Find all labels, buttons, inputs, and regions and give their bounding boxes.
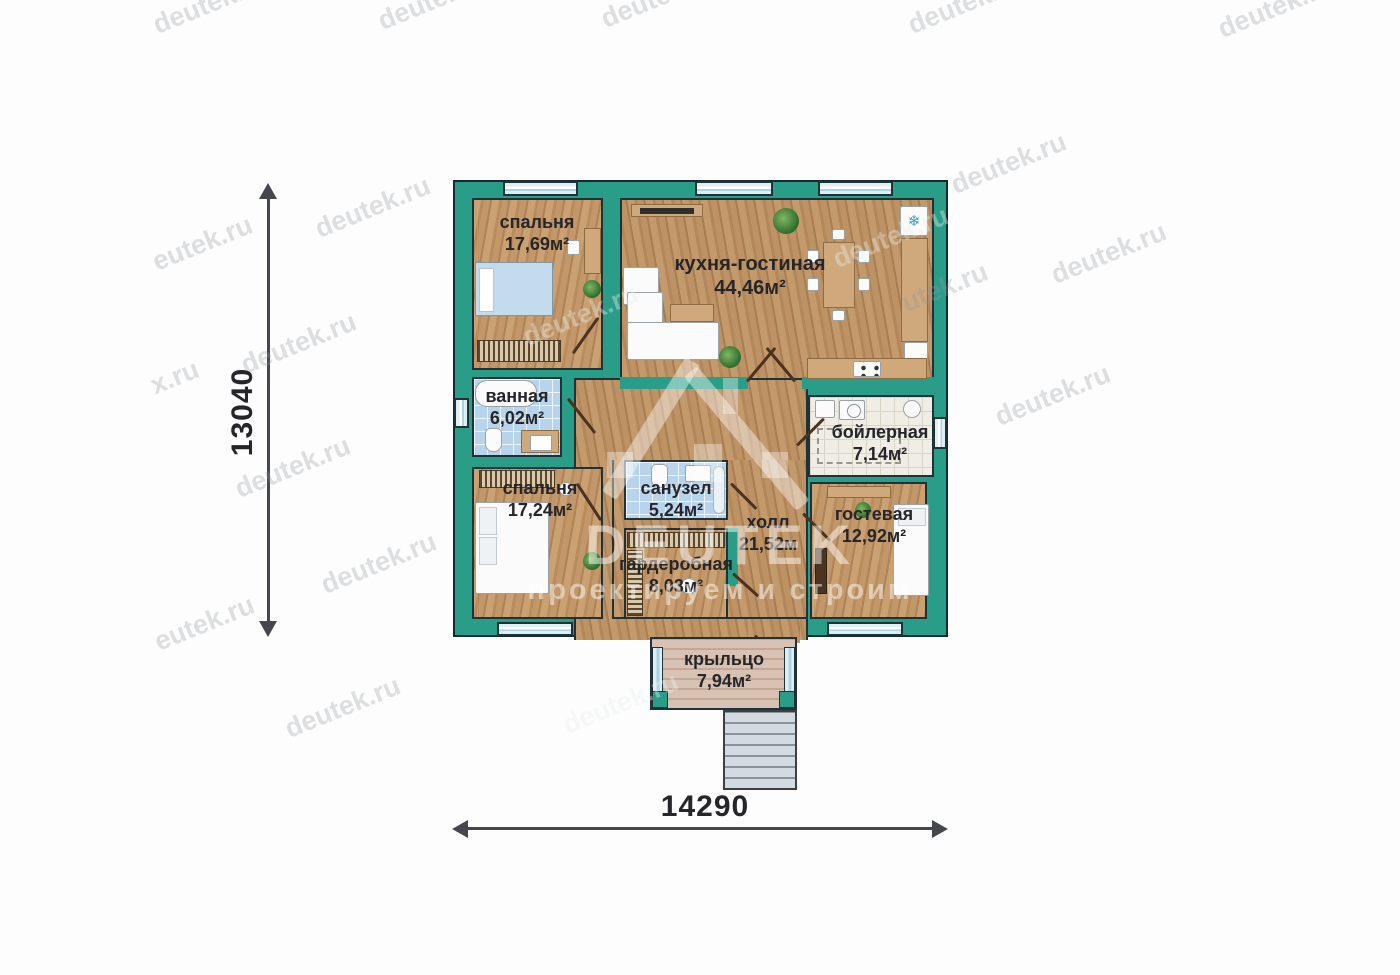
watermark-text: eutek.ru — [148, 209, 257, 277]
watermark-text: deutek.ru — [597, 0, 721, 35]
watermark-text: x.ru — [146, 354, 204, 401]
room-label-guest: гостевая 12,92м² — [819, 504, 929, 547]
kitchen-counter-right-icon — [901, 238, 928, 342]
porch-post — [652, 691, 668, 708]
sink-icon — [815, 400, 835, 418]
tv-stand-icon — [631, 204, 703, 217]
dresser-icon — [827, 486, 891, 498]
toilet-icon — [485, 428, 502, 452]
chair-icon — [832, 229, 845, 240]
room-area: 21,52м — [713, 534, 823, 556]
fridge-icon: ❄ — [900, 206, 928, 236]
wardrobe-unit-icon — [627, 532, 725, 548]
pillow-icon — [479, 537, 497, 565]
window — [503, 181, 578, 196]
entrance-stairs — [723, 710, 797, 790]
room-area: 6,02м² — [467, 408, 567, 430]
coffee-table-icon — [670, 304, 714, 322]
watermark-text: deutek.ru — [947, 126, 1071, 200]
room-area: 8,03м² — [617, 576, 735, 598]
watermark-text: eutek.ru — [150, 589, 259, 657]
watermark-text: deutek.ru — [149, 0, 273, 41]
room-label-bathroom: ванная 6,02м² — [467, 386, 567, 429]
wardrobe-unit-icon — [477, 340, 561, 362]
plant-icon — [583, 552, 601, 570]
vertical-dimension-line — [267, 196, 270, 624]
chair-icon — [858, 250, 870, 263]
porch-glazing — [652, 647, 663, 695]
room-label-kitchen-living: кухня-гостиная 44,46м² — [665, 252, 835, 300]
watermark-text: deutek.ru — [374, 0, 498, 37]
room-name: бойлерная — [825, 422, 935, 444]
window — [827, 622, 903, 636]
vanity-sink-icon — [521, 430, 559, 453]
sink-icon — [530, 435, 552, 451]
room-name: гардеробная — [617, 554, 735, 576]
watermark-text: deutek.ru — [1047, 216, 1171, 290]
room-label-boiler: бойлерная 7,14м² — [825, 422, 935, 465]
floor-plan-canvas: deutek.rudeutek.rudeutek.rudeutek.rudeut… — [0, 0, 1400, 975]
plant-icon — [773, 208, 799, 234]
wall-kitchen-hall-left — [620, 377, 748, 389]
arrow-left-icon — [452, 820, 468, 838]
room-area: 44,46м² — [665, 276, 835, 300]
room-name: санузел — [621, 478, 731, 500]
room-area: 7,94м² — [666, 671, 782, 693]
horizontal-dimension-value: 14290 — [640, 790, 770, 824]
watermark-text: deutek.ru — [991, 358, 1115, 432]
vertical-dimension-value: 13040 — [226, 352, 260, 472]
watermark-text: deutek.ru — [904, 0, 1028, 41]
stove-icon — [853, 361, 881, 377]
washer-drum-icon — [847, 404, 861, 418]
room-label-porch: крыльцо 7,94м² — [666, 649, 782, 692]
arrow-right-icon — [932, 820, 948, 838]
room-area: 12,92м² — [819, 526, 929, 548]
watermark-text: deutek.ru — [281, 670, 405, 744]
porch-post — [779, 691, 795, 708]
sofa-chaise-icon — [627, 292, 663, 324]
sofa-icon — [627, 322, 719, 360]
room-name: кухня-гостиная — [665, 252, 835, 276]
room-label-hall: холл 21,52м — [713, 512, 823, 555]
room-area: 17,24м² — [485, 500, 595, 522]
washing-machine-icon — [839, 400, 865, 420]
boiler-tank-icon — [903, 400, 921, 418]
room-name: спальня — [477, 212, 597, 234]
room-name: гостевая — [819, 504, 929, 526]
bed-icon — [475, 262, 553, 316]
window — [818, 181, 893, 196]
room-label-wardrobe: гардеробная 8,03м² — [617, 554, 735, 597]
watermark-text: deutek.ru — [317, 526, 441, 600]
room-name: ванная — [467, 386, 567, 408]
watermark-text: deutek.ru — [311, 170, 435, 244]
arrow-up-icon — [259, 183, 277, 199]
room-area: 7,14м² — [825, 444, 935, 466]
room-label-bedroom-2: спальня 17,24м² — [485, 478, 595, 521]
porch-glazing — [784, 647, 795, 695]
chair-icon — [832, 310, 845, 321]
building-outline: ❄ — [453, 180, 948, 637]
room-area: 17,69м² — [477, 234, 597, 256]
room-label-bedroom-1: спальня 17,69м² — [477, 212, 597, 255]
horizontal-dimension-line — [466, 827, 934, 830]
watermark-text: deutek.ru — [1214, 0, 1338, 45]
window — [695, 181, 773, 196]
tv-icon — [640, 208, 694, 214]
chair-icon — [858, 278, 870, 291]
window — [454, 398, 469, 428]
room-name: холл — [713, 512, 823, 534]
plant-icon — [719, 346, 741, 368]
room-name: спальня — [485, 478, 595, 500]
plant-icon — [583, 280, 601, 298]
pillow-icon — [479, 268, 494, 312]
arrow-down-icon — [259, 621, 277, 637]
window — [497, 622, 573, 636]
porch: крыльцо 7,94м² — [650, 637, 797, 710]
window — [933, 417, 947, 449]
room-name: крыльцо — [666, 649, 782, 671]
